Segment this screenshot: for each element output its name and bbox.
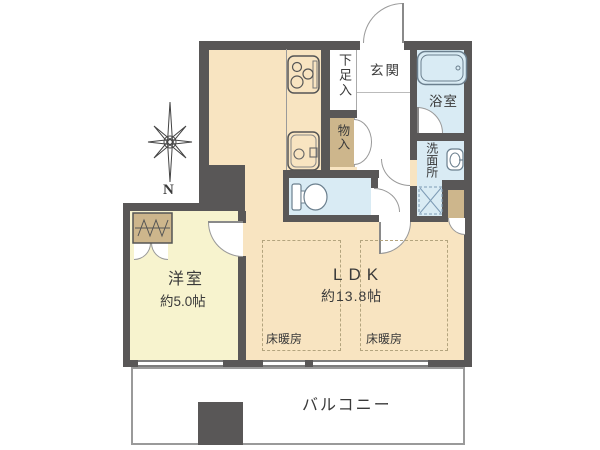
- balcony-area: [131, 367, 465, 445]
- ldk-window: [263, 360, 428, 367]
- floor-plan: 下足入 玄関 浴室 洗面所 物入 洋室 約5.0帖 LDK 約13.8帖 床暖房…: [0, 0, 600, 450]
- ldk-window-mullion: [305, 360, 313, 367]
- floor-heating-label-1: 床暖房: [266, 333, 302, 347]
- bathroom-door-leaf: [417, 107, 419, 133]
- wall-bottom-1: [123, 360, 138, 367]
- wall-closet-top: [442, 180, 464, 190]
- wall-toilet-bottom: [283, 215, 379, 222]
- wall-right: [464, 41, 472, 367]
- ldk-label: LDK: [333, 265, 384, 285]
- wall-toilet-right-nub: [371, 178, 378, 188]
- ldk-side-closet: [448, 190, 464, 218]
- wall-left-lower: [123, 203, 130, 367]
- compass-rose-icon: [140, 100, 200, 184]
- ldk-size: 約13.8帖: [321, 288, 382, 304]
- bathtub-icon: [416, 50, 468, 86]
- wall-western-room-top: [123, 203, 245, 211]
- wall-left-upper: [199, 41, 209, 170]
- western-room-window: [138, 360, 223, 367]
- washroom-label: 洗面所: [424, 142, 438, 178]
- wall-shoe-storage-divider: [321, 110, 357, 118]
- wall-bath-washroom: [410, 133, 464, 141]
- stove-icon: [287, 55, 321, 95]
- entrance-step-line: [357, 92, 410, 93]
- compass-north-label: N: [163, 182, 174, 199]
- entrance-label: 玄関: [370, 63, 401, 79]
- western-room-label: 洋室: [168, 271, 204, 289]
- hanger-closet-icon: [132, 212, 173, 244]
- western-room-size: 約5.0帖: [160, 294, 206, 310]
- washbasin-icon: [446, 148, 465, 172]
- balcony-pillar: [198, 402, 243, 445]
- wall-western-right: [238, 256, 246, 367]
- western-room-door-leaf: [208, 221, 243, 223]
- wall-top-left: [199, 41, 360, 50]
- toilet-icon: [291, 181, 328, 213]
- entrance-door-leaf: [402, 3, 404, 43]
- storage-label: 物入: [335, 124, 349, 151]
- shoe-storage-label: 下足入: [336, 53, 351, 98]
- floor-heating-label-2: 床暖房: [366, 333, 402, 347]
- wall-bottom-3: [428, 360, 472, 367]
- washing-machine-space-icon: [418, 186, 443, 215]
- bathroom-label: 浴室: [429, 94, 458, 110]
- kitchen-sink-icon: [287, 131, 321, 172]
- balcony-label: バルコニー: [302, 397, 392, 415]
- entrance-door-arc: [363, 3, 403, 43]
